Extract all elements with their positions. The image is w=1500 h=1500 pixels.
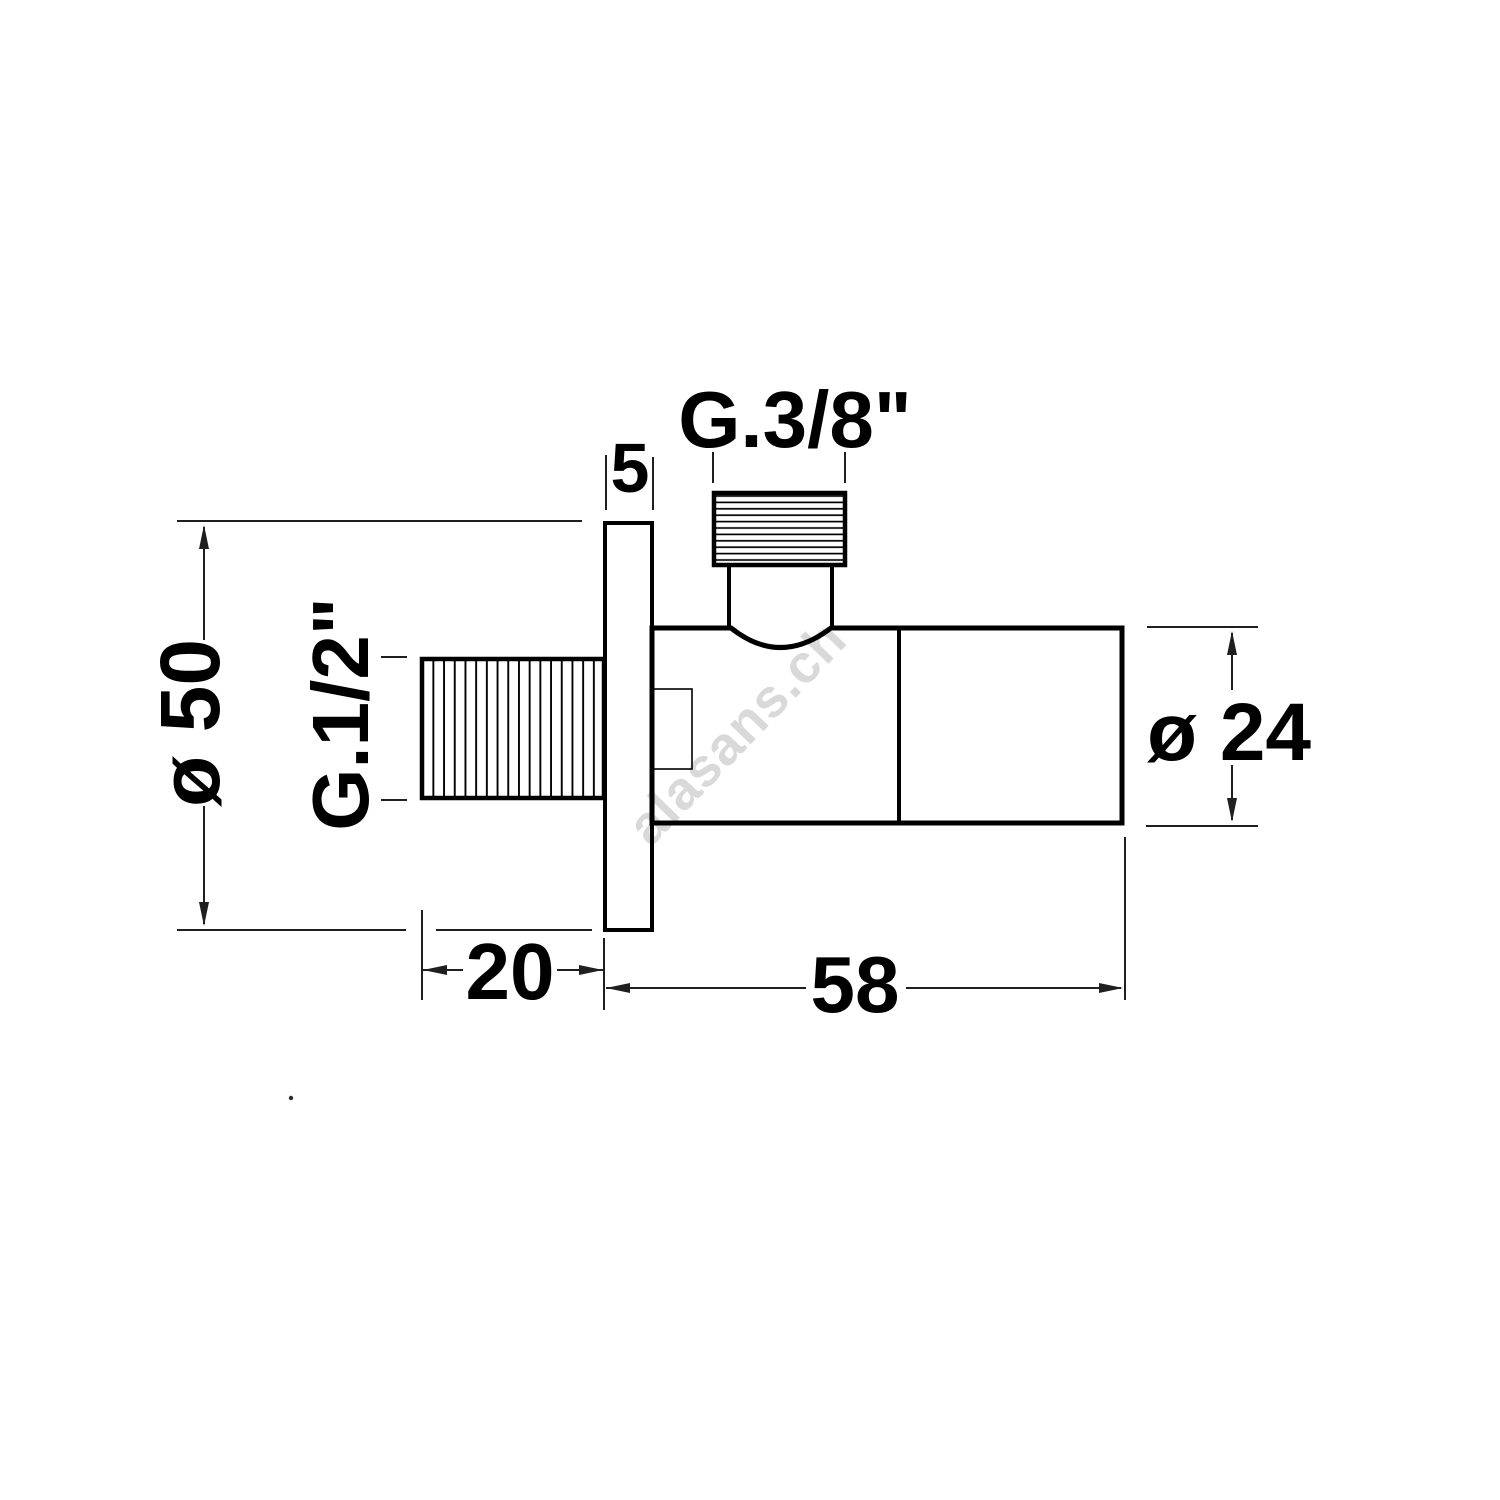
angle-valve-technical-drawing: G.3/8" 5 ø 50 G.1/2" ø 24 20 58 alasans.… <box>0 0 1500 1500</box>
label-side-thread: G.1/2" <box>296 597 385 831</box>
top-thread-connector <box>714 493 845 565</box>
label-body-length: 58 <box>811 940 900 1029</box>
label-body-diameter: ø 24 <box>1147 687 1311 778</box>
print-speck <box>289 1096 293 1100</box>
label-flange-thickness: 5 <box>611 429 650 507</box>
dia24-arrow-up <box>1227 631 1237 655</box>
dia50-arrow-up <box>199 525 209 549</box>
label-thread-length: 20 <box>466 927 555 1016</box>
len58-arrow-left <box>606 983 630 993</box>
label-top-thread: G.3/8" <box>678 375 912 464</box>
dia50-arrow-down <box>199 902 209 926</box>
label-flange-diameter: ø 50 <box>143 639 237 807</box>
dia24-arrow-down <box>1227 798 1237 822</box>
len58-arrow-right <box>1099 983 1123 993</box>
inlet-thread-pipe <box>422 659 604 798</box>
wall-flange-plate <box>605 523 652 930</box>
len20-arrow-left <box>423 965 447 975</box>
len20-arrow-right <box>579 965 603 975</box>
drawing-canvas: G.3/8" 5 ø 50 G.1/2" ø 24 20 58 alasans.… <box>0 0 1500 1500</box>
